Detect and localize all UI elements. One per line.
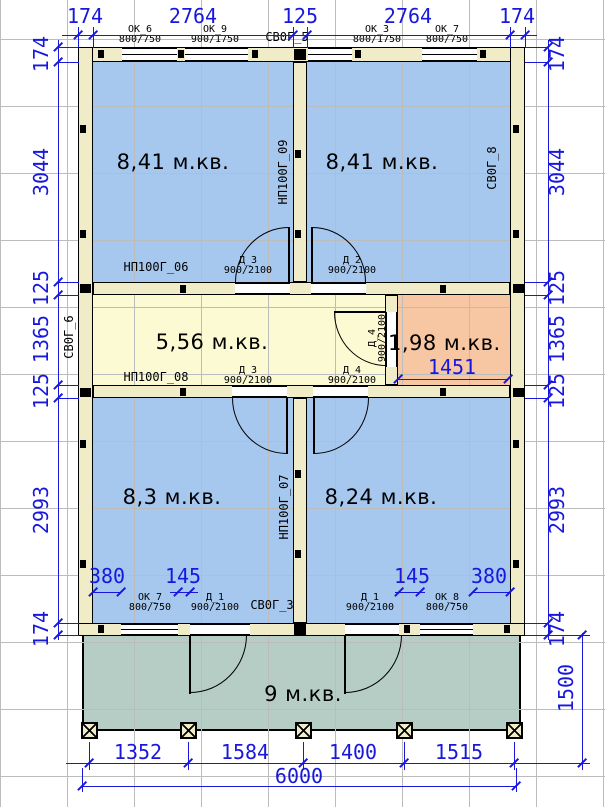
- window-ok8: [420, 624, 473, 635]
- wall-stud: [440, 285, 446, 293]
- dim-offset-left-380: 380: [77, 566, 137, 586]
- wall-left: [78, 47, 93, 635]
- wall-stud: [504, 625, 510, 633]
- wall-stud: [513, 440, 519, 448]
- area-label-storage: 1,98 м.кв.: [388, 331, 498, 355]
- door-opening-top-right: [311, 283, 366, 294]
- panel-label-bottom-center: СВ0Г_3: [237, 598, 307, 612]
- door-label-bottom-left: Д_3900/2100: [213, 366, 283, 386]
- dim-left-0: 174: [31, 24, 51, 84]
- dim-ext: [58, 398, 79, 399]
- wall-joint: [80, 388, 91, 397]
- area-label-top-right: 8,41 м.кв.: [312, 150, 452, 174]
- wall-stud: [80, 230, 86, 238]
- dim-ext: [78, 27, 79, 48]
- wall-stud: [178, 50, 184, 58]
- dim-top-3: 2764: [368, 6, 448, 26]
- wall-hall-top: [93, 282, 510, 295]
- wall-stud: [295, 550, 301, 558]
- dim-ext: [93, 27, 94, 48]
- wall-stud: [440, 388, 446, 396]
- panel-label-top-left-room: НП100Г_06: [106, 260, 206, 274]
- dim-line-porch: [582, 633, 583, 770]
- dim-ext: [514, 742, 515, 770]
- dim-ext: [82, 768, 83, 792]
- window-ok6: [122, 48, 177, 61]
- dim-bottom-1: 1584: [205, 742, 285, 762]
- panel-label-hall-bottom: НП100Г_08: [106, 370, 206, 384]
- porch-post: [81, 722, 98, 739]
- dim-top-0: 174: [60, 6, 110, 26]
- window-label-ok8: ОК_8800/750: [412, 593, 482, 613]
- wall-stud: [98, 50, 104, 58]
- door-opening-entry-left: [190, 624, 250, 635]
- dim-top-4: 174: [492, 6, 542, 26]
- wall-stud: [295, 470, 301, 478]
- panel-label-center-top: НП100Г_09: [276, 127, 290, 217]
- area-label-hall: 5,56 м.кв.: [142, 330, 282, 354]
- door-label-top-left: Д_3900/2100: [213, 256, 283, 276]
- wall-hall-bottom: [93, 385, 510, 398]
- dim-ext: [537, 763, 590, 764]
- dim-ext: [516, 768, 517, 792]
- window-ok3: [308, 48, 352, 61]
- area-label-porch: 9 м.кв.: [233, 682, 373, 706]
- wall-center-bottom: [293, 398, 307, 623]
- dim-top-1: 2764: [153, 6, 233, 26]
- porch-post: [295, 722, 312, 739]
- porch-post: [180, 722, 197, 739]
- dim-ext: [58, 62, 79, 63]
- panel-label-top-center: СВ0Г_5: [252, 30, 322, 44]
- porch-post: [396, 722, 413, 739]
- area-label-top-left: 8,41 м.кв.: [103, 150, 243, 174]
- wall-stud: [404, 625, 410, 633]
- wall-stud: [180, 285, 186, 293]
- dim-line-top: [62, 35, 537, 36]
- dim-ext: [58, 385, 79, 386]
- panel-label-left-middle: СВ0Г_6: [62, 302, 76, 372]
- dim-ext: [525, 27, 526, 48]
- wall-stud: [295, 230, 301, 238]
- door-label-storage: Д_4900/2100: [368, 303, 390, 373]
- wall-joint: [513, 388, 524, 397]
- dim-left-5: 2993: [31, 480, 51, 540]
- dim-ext: [58, 282, 79, 283]
- wall-stud: [80, 125, 86, 133]
- dim-offset-right-145: 145: [382, 566, 442, 586]
- panel-label-right-top: СВ0Г_8: [485, 133, 499, 203]
- window-ok9: [185, 48, 248, 61]
- wall-stud: [355, 50, 361, 58]
- window-ok7-bottom: [121, 624, 178, 635]
- dim-ext: [89, 742, 90, 770]
- door-opening-bottom-right: [313, 386, 368, 397]
- wall-joint: [513, 284, 524, 293]
- dim-ext: [188, 742, 189, 770]
- dim-ext: [58, 295, 79, 296]
- dim-right-1: 3044: [547, 142, 567, 202]
- dim-ext: [58, 635, 79, 636]
- wall-joint: [80, 284, 91, 293]
- dim-line-left: [58, 40, 59, 640]
- porch-post: [506, 722, 523, 739]
- dim-ext: [510, 27, 511, 48]
- dim-left-4: 125: [31, 361, 51, 421]
- dim-right-5: 2993: [547, 480, 567, 540]
- dim-porch-depth: 1500: [556, 658, 576, 718]
- dim-offset-left-145: 145: [153, 566, 213, 586]
- wall-center-top: [293, 62, 307, 282]
- floor-plan-canvas: 8,41 м.кв. 8,41 м.кв. 5,56 м.кв. 1,98 м.…: [0, 0, 605, 807]
- dim-storage-width: 1451: [412, 357, 492, 377]
- wall-joint: [294, 624, 306, 635]
- wall-stud: [98, 625, 104, 633]
- dim-left-6: 174: [31, 599, 51, 659]
- wall-stud: [295, 150, 301, 158]
- dim-ext: [58, 623, 79, 624]
- door-label-top-right: Д_2900/2100: [317, 256, 387, 276]
- dim-ext: [404, 742, 405, 770]
- wall-stud: [480, 50, 486, 58]
- area-label-bottom-right: 8,24 м.кв.: [311, 485, 451, 509]
- wall-stud: [513, 125, 519, 133]
- dim-bottom-2: 1400: [313, 742, 393, 762]
- dim-ext: [58, 47, 79, 48]
- dim-left-1: 3044: [31, 142, 51, 202]
- dim-right-3: 1365: [547, 309, 567, 369]
- window-ok7-top: [422, 48, 477, 61]
- wall-stud: [80, 440, 86, 448]
- dim-right-4: 125: [547, 361, 567, 421]
- dim-bottom-3: 1515: [419, 742, 499, 762]
- wall-stud: [252, 50, 258, 58]
- dim-left-3: 1365: [31, 309, 51, 369]
- dim-right-0: 174: [547, 24, 567, 84]
- wall-stud: [513, 230, 519, 238]
- dim-ext: [307, 27, 308, 48]
- wall-joint: [294, 49, 306, 60]
- dim-ext: [293, 27, 294, 48]
- wall-right: [510, 47, 525, 635]
- dim-line: [398, 379, 508, 380]
- dim-total-width: 6000: [259, 766, 339, 786]
- dim-line: [473, 592, 510, 593]
- dim-offset-right-380: 380: [459, 566, 519, 586]
- door-opening-bottom-left: [232, 386, 287, 397]
- wall-stud: [180, 388, 186, 396]
- dim-right-6: 174: [547, 599, 567, 659]
- area-label-bottom-left: 8,3 м.кв.: [102, 485, 242, 509]
- panel-label-center-bottom: НП100Г_07: [277, 462, 291, 552]
- door-opening-entry-right: [345, 624, 399, 635]
- door-opening-top-left: [235, 283, 290, 294]
- dim-bottom-0: 1352: [98, 742, 178, 762]
- dim-top-2: 125: [275, 6, 325, 26]
